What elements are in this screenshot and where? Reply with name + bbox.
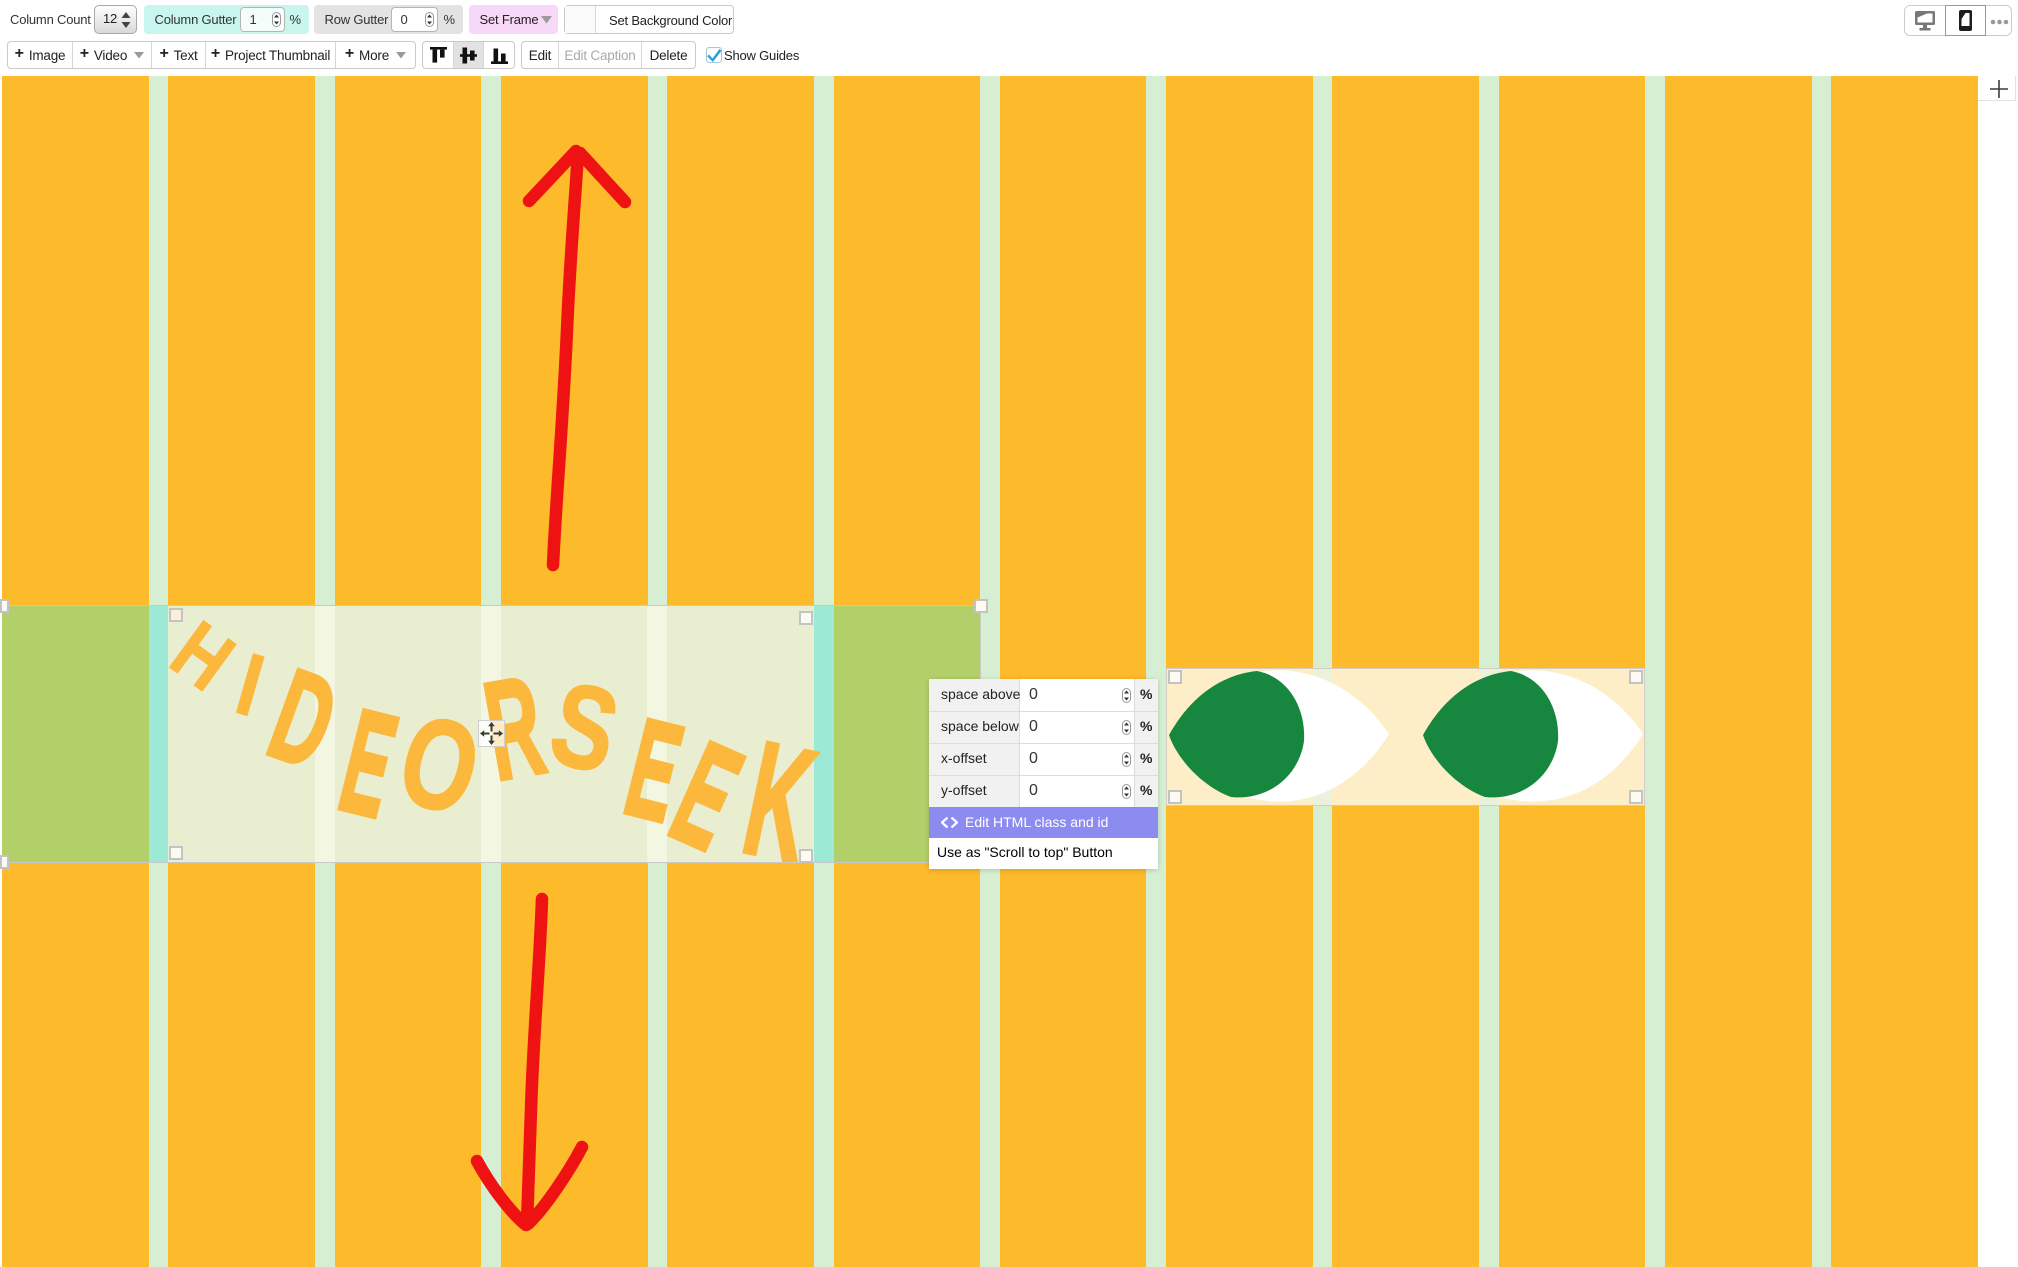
svg-text:D: D <box>253 642 354 797</box>
svg-text:S: S <box>539 657 630 800</box>
